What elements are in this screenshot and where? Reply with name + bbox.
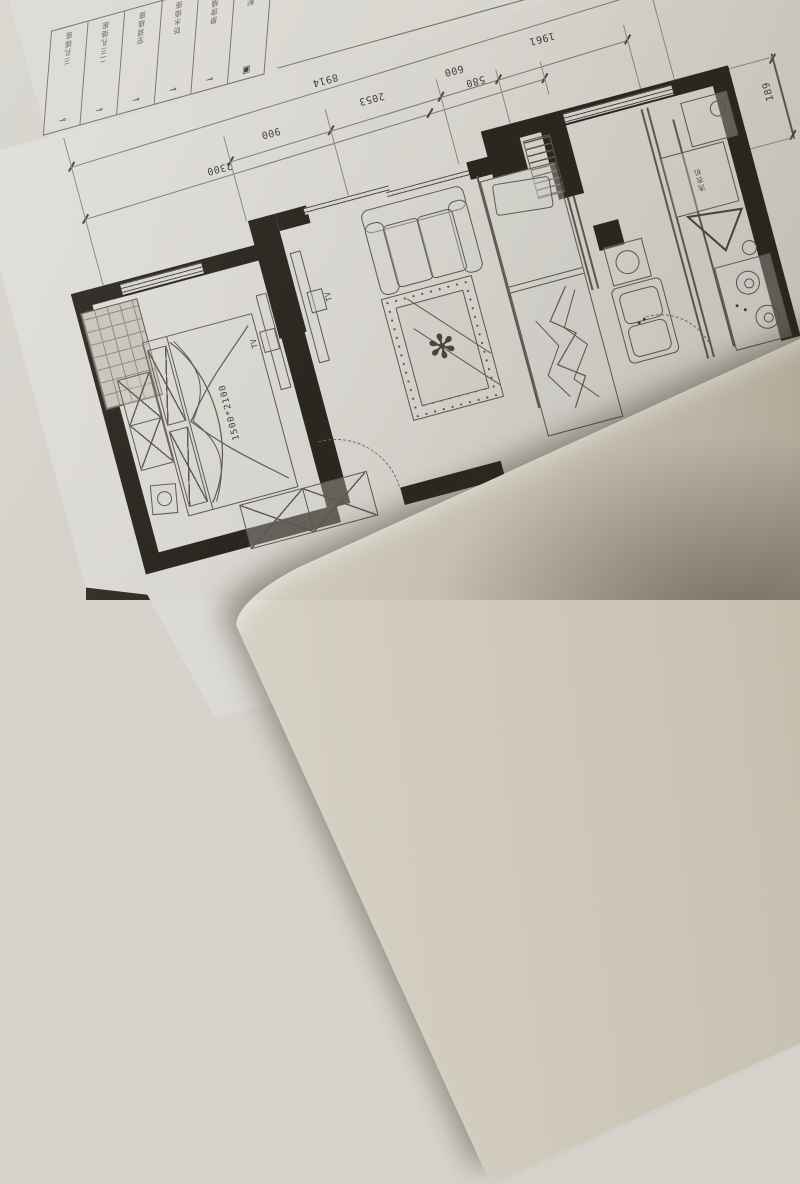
burner — [753, 302, 782, 331]
pillow — [492, 176, 554, 217]
burner — [733, 268, 762, 297]
rug-center: ✻ — [395, 290, 489, 407]
bedside-stool — [150, 483, 179, 515]
photo-of-floorplan: { "scene": { "description": "Photograph … — [0, 0, 800, 600]
washer-label: 洗衣机 — [692, 167, 708, 193]
